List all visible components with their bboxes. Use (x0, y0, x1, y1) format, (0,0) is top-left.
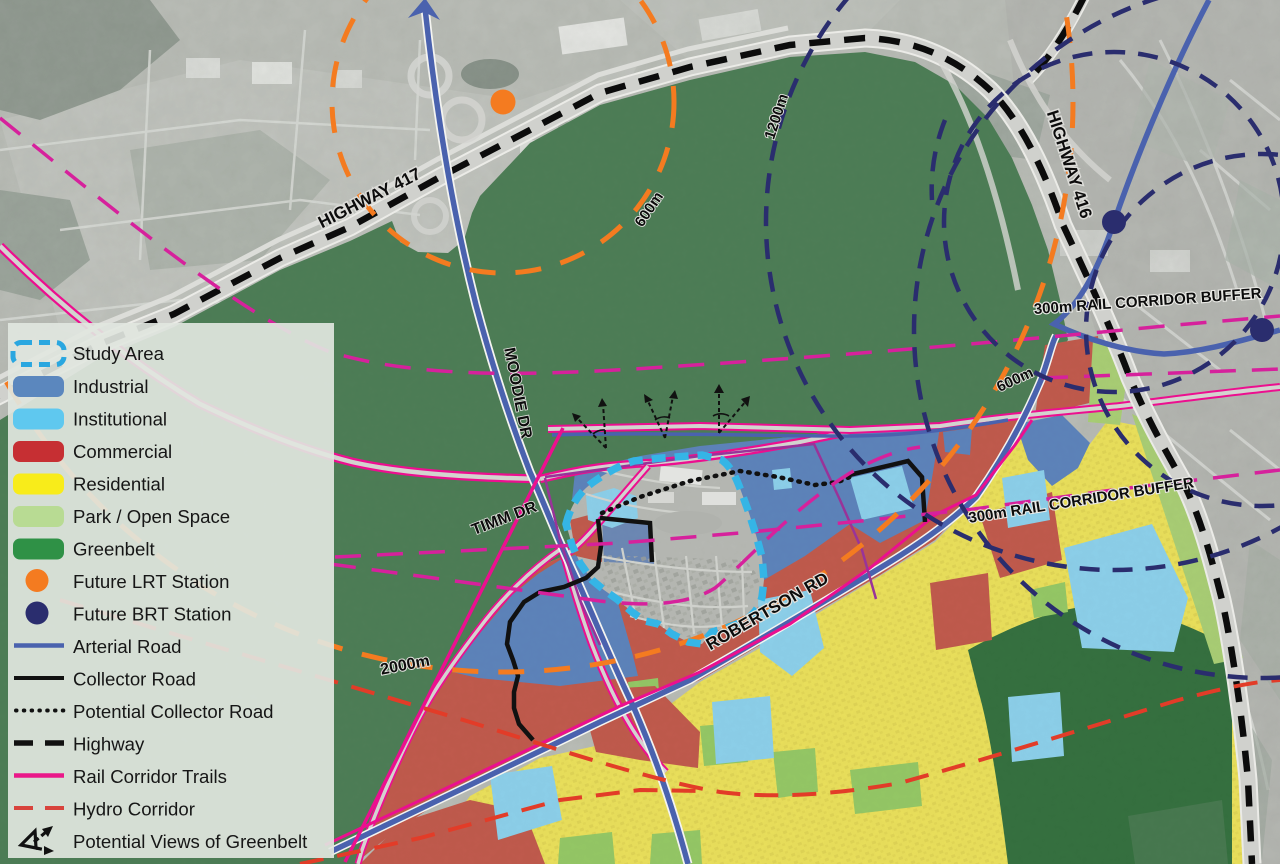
svg-text:Future LRT Station: Future LRT Station (73, 571, 229, 592)
svg-text:Commercial: Commercial (73, 441, 172, 462)
svg-text:Highway: Highway (73, 734, 145, 755)
svg-text:Park / Open Space: Park / Open Space (73, 506, 230, 527)
svg-text:Study Area: Study Area (73, 343, 165, 364)
svg-text:Industrial: Industrial (73, 376, 148, 397)
svg-text:Arterial Road: Arterial Road (73, 636, 182, 657)
svg-text:Residential: Residential (73, 474, 165, 495)
svg-text:Greenbelt: Greenbelt (73, 539, 155, 560)
svg-text:Hydro Corridor: Hydro Corridor (73, 799, 195, 820)
svg-text:Institutional: Institutional (73, 409, 167, 430)
svg-text:Rail Corridor Trails: Rail Corridor Trails (73, 766, 227, 787)
svg-text:Potential Views of Greenbelt: Potential Views of Greenbelt (73, 831, 308, 852)
svg-text:Future BRT Station: Future BRT Station (73, 604, 231, 625)
svg-text:Potential Collector Road: Potential Collector Road (73, 701, 274, 722)
svg-text:Collector Road: Collector Road (73, 669, 196, 690)
